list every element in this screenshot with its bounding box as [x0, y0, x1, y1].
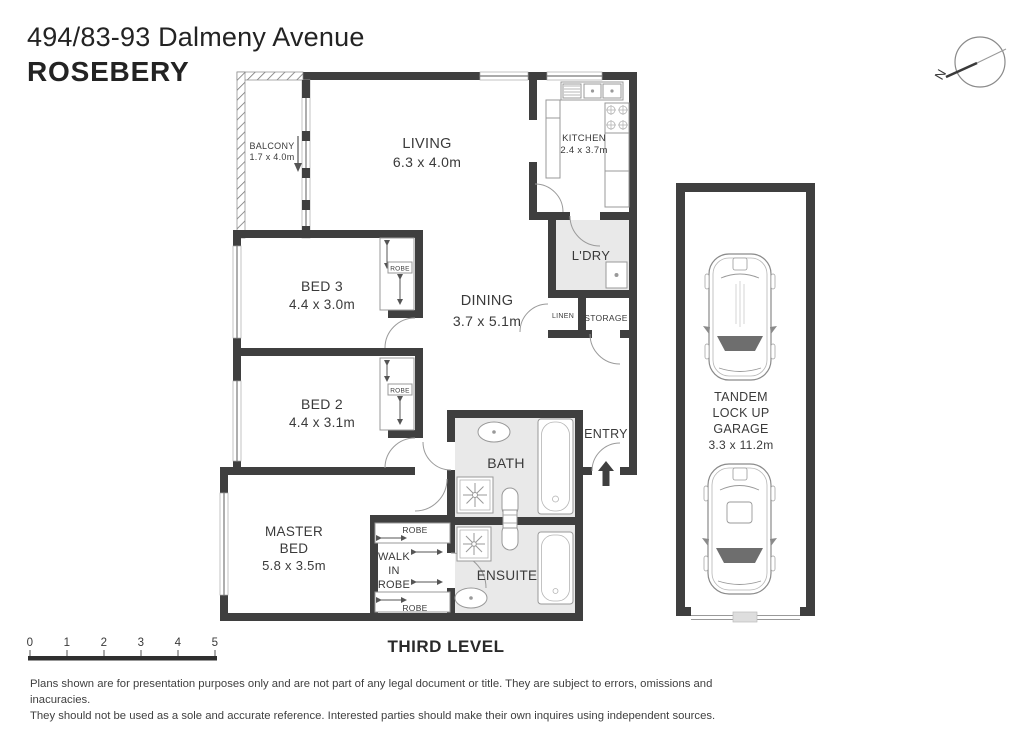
scale-tick-0: 0 [27, 637, 34, 649]
scale-tick-4: 4 [175, 637, 182, 649]
bath-label: BATH [487, 455, 525, 471]
kitchen-dims: 2.4 x 3.7m [560, 145, 607, 156]
linen-door [520, 304, 548, 332]
disclaimer-line-2: They should not be used as a sole and ac… [30, 708, 730, 724]
wir-robe-bottom-label: ROBE [402, 603, 427, 613]
kitchen-window [547, 72, 602, 80]
garage-label-3: GARAGE [713, 422, 768, 436]
master-label-1: MASTER [265, 524, 323, 539]
kitchen-cabinet [605, 171, 629, 207]
bed3-door [385, 318, 415, 348]
kitchen-door [535, 184, 563, 212]
scale-tick-5: 5 [212, 637, 219, 649]
garage-dims: 3.3 x 11.2m [708, 438, 773, 452]
bathtub [538, 419, 573, 514]
bath-toilet [502, 488, 518, 550]
laundry-trough [606, 262, 627, 288]
car-icon [703, 254, 777, 380]
linen-label: LINEN [552, 313, 574, 320]
garage-label-1: TANDEM [714, 390, 768, 404]
bed3-label: BED 3 [301, 278, 343, 294]
ensuite-basin [455, 588, 487, 608]
bed2-window [233, 381, 241, 461]
kitchen-counter-right [605, 133, 629, 171]
wir-robe-top-label: ROBE [402, 525, 427, 535]
kitchen-sink [561, 82, 623, 100]
dining-label: DINING [461, 293, 514, 309]
wir-label-2: IN [388, 565, 400, 577]
master-door [415, 479, 447, 511]
living-label: LIVING [402, 136, 451, 152]
bed2-dims: 4.4 x 3.1m [289, 415, 355, 430]
disclaimer-line-1: Plans shown are for presentation purpose… [30, 676, 730, 708]
bed3-robe-label: ROBE [390, 266, 410, 273]
storage-label: STORAGE [584, 313, 628, 323]
kitchen-counter-left [546, 100, 560, 178]
laundry-label: L'DRY [572, 248, 610, 263]
kitchen-label: KITCHEN [562, 133, 606, 144]
floorplan-page: 494/83-93 Dalmeny Avenue ROSEBERY [0, 0, 1024, 735]
master-window [220, 493, 228, 595]
dining-dims: 3.7 x 5.1m [453, 313, 521, 329]
entry-label: ENTRY [584, 427, 628, 441]
balcony-sliding-door [294, 80, 310, 238]
ensuite-label: ENSUITE [477, 568, 538, 583]
north-label: N [932, 66, 950, 82]
bed3-dims: 4.4 x 3.0m [289, 297, 355, 312]
bed2-door [385, 438, 415, 468]
floorplan-drawing: N BALCONY 1.7 x 4.0m LIVING 6.3 x 4.0m K… [0, 0, 1024, 735]
ensuite-shower [457, 527, 491, 561]
wir-shelves [375, 523, 450, 612]
scale-tick-2: 2 [101, 637, 108, 649]
entry-direction-arrow [598, 461, 614, 486]
disclaimer: Plans shown are for presentation purpose… [30, 676, 730, 724]
wir-label-3: ROBE [378, 579, 410, 591]
master-label-2: BED [280, 541, 309, 556]
scale-tick-1: 1 [64, 637, 71, 649]
scale-bar: 0 1 2 3 4 5 [27, 637, 219, 661]
level-label: THIRD LEVEL [388, 637, 505, 656]
scale-tick-3: 3 [138, 637, 145, 649]
garage-label-2: LOCK UP [713, 406, 770, 420]
compass-icon: N [932, 37, 1006, 87]
living-dims: 6.3 x 4.0m [393, 154, 461, 170]
balcony-hatched-wall-top [237, 72, 303, 80]
stove-cooktop [605, 103, 629, 133]
garage-door [691, 612, 800, 622]
storage-door [590, 334, 620, 364]
bath-basin [478, 422, 510, 442]
bed2-label: BED 2 [301, 396, 343, 412]
ensuite-bathtub [538, 532, 573, 604]
bath-shower [457, 477, 493, 513]
bed3-window [233, 246, 241, 338]
balcony-label: BALCONY [249, 141, 294, 151]
balcony-hatched-wall-left [237, 72, 245, 238]
balcony-dims: 1.7 x 4.0m [249, 152, 294, 162]
master-dims: 5.8 x 3.5m [262, 558, 326, 573]
car-icon [702, 464, 777, 594]
bed3-robe [380, 238, 414, 310]
wir-label-1: WALK [378, 551, 410, 563]
living-window [480, 72, 528, 80]
bed2-robe-label: ROBE [390, 388, 410, 395]
bath-door [423, 442, 451, 470]
